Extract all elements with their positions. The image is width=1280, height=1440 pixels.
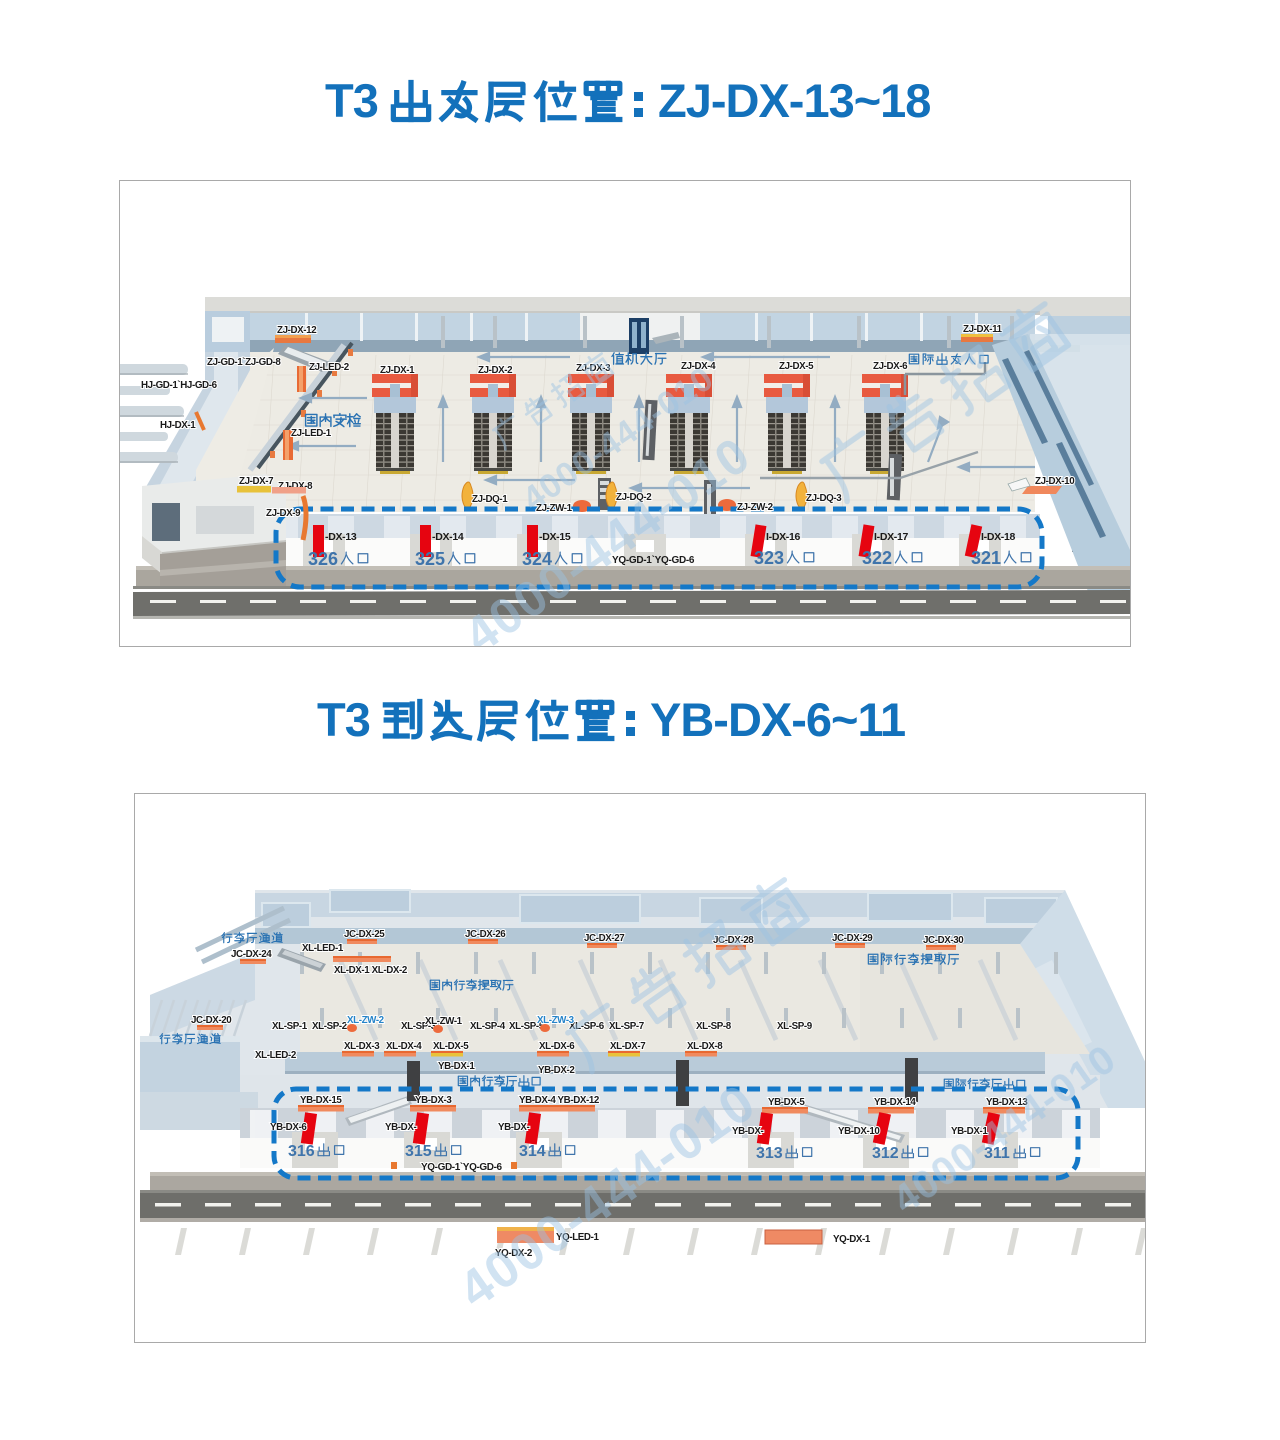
svg-text:ZJ-GD-1`ZJ-GD-8: ZJ-GD-1`ZJ-GD-8 [207,357,281,368]
svg-text:YB-DX-3: YB-DX-3 [415,1095,452,1106]
svg-text:XL-DX-7: XL-DX-7 [610,1041,646,1052]
svg-text:XL-DX-1 XL-DX-2: XL-DX-1 XL-DX-2 [334,965,408,976]
svg-text:JC-DX-30: JC-DX-30 [923,935,964,946]
svg-text:YQ-DX-1: YQ-DX-1 [833,1234,871,1245]
svg-text:YB-DX-2: YB-DX-2 [538,1065,575,1076]
svg-text:T3: T3 [325,74,378,127]
svg-text:XL-ZW-3: XL-ZW-3 [537,1015,575,1026]
svg-text:316: 316 [288,1143,315,1160]
svg-text:323: 323 [754,548,784,568]
svg-text:YQ-GD-1`YQ-GD-6: YQ-GD-1`YQ-GD-6 [421,1162,503,1173]
svg-text:XL-SP-2: XL-SP-2 [312,1021,348,1032]
svg-text:-DX-13: -DX-13 [325,531,357,543]
svg-text:ZJ-DX-5: ZJ-DX-5 [779,361,814,372]
svg-text:ZJ-DX-6: ZJ-DX-6 [873,361,908,372]
svg-text:ZJ-DQ-3: ZJ-DQ-3 [806,493,842,504]
svg-text:XL-LED-1: XL-LED-1 [302,943,344,954]
svg-text:YB-DX-4 YB-DX-12: YB-DX-4 YB-DX-12 [519,1095,600,1106]
svg-text:ZJ-DX-10: ZJ-DX-10 [1035,476,1075,487]
svg-text:HJ-GD-1`HJ-GD-6: HJ-GD-1`HJ-GD-6 [141,380,218,391]
svg-text:ZJ-DQ-1: ZJ-DQ-1 [472,494,508,505]
svg-text:JC-DX-20: JC-DX-20 [191,1015,232,1026]
svg-text:XL-SP-4: XL-SP-4 [470,1021,506,1032]
svg-text:312: 312 [872,1145,899,1162]
svg-text:ZJ-LED-2: ZJ-LED-2 [309,362,350,373]
svg-text:ZJ-DX-12: ZJ-DX-12 [277,325,317,336]
svg-text:I-DX-16: I-DX-16 [766,531,801,543]
svg-text:-DX-14: -DX-14 [432,531,464,543]
svg-text:ZJ-DX-11: ZJ-DX-11 [963,324,1003,335]
svg-text:YB-DX-: YB-DX- [385,1122,416,1133]
svg-text:XL-SP-1: XL-SP-1 [272,1021,308,1032]
svg-text:YB-DX-14: YB-DX-14 [874,1097,916,1108]
svg-text:YB-DX-5: YB-DX-5 [768,1097,805,1108]
svg-text:JC-DX-24: JC-DX-24 [231,949,272,960]
svg-text:I-DX-17: I-DX-17 [874,531,909,543]
svg-text:314: 314 [519,1143,546,1160]
svg-text:XL-ZW-1: XL-ZW-1 [425,1016,463,1027]
svg-text:ZJ-DX-1: ZJ-DX-1 [380,365,415,376]
svg-text:HJ-DX-1: HJ-DX-1 [160,420,196,431]
svg-text:326: 326 [308,549,338,569]
svg-text:XL-SP-7: XL-SP-7 [609,1021,645,1032]
svg-text:XL-DX-3: XL-DX-3 [344,1041,380,1052]
svg-text:YB-DX-10: YB-DX-10 [838,1126,880,1137]
svg-text:ZJ-ZW-2: ZJ-ZW-2 [737,502,774,513]
svg-text:JC-DX-27: JC-DX-27 [584,933,625,944]
svg-text:YB-DX-: YB-DX- [498,1122,529,1133]
svg-text:XL-DX-5: XL-DX-5 [433,1041,469,1052]
svg-text:JC-DX-25: JC-DX-25 [344,929,385,940]
svg-text:JC-DX-26: JC-DX-26 [465,929,506,940]
svg-text:XL-DX-4: XL-DX-4 [386,1041,422,1052]
svg-text:JC-DX-29: JC-DX-29 [832,933,873,944]
svg-text:XL-SP-9: XL-SP-9 [777,1021,813,1032]
svg-text:T3: T3 [317,693,370,746]
svg-text:YB-DX-1: YB-DX-1 [438,1061,475,1072]
svg-text:315: 315 [405,1143,432,1160]
svg-text:XL-SP-8: XL-SP-8 [696,1021,732,1032]
svg-text:321: 321 [971,548,1001,568]
svg-text:ZJ-DX-13~18: ZJ-DX-13~18 [658,74,930,127]
svg-text:XL-DX-8: XL-DX-8 [687,1041,723,1052]
svg-text:XL-DX-6: XL-DX-6 [539,1041,575,1052]
svg-text:ZJ-DX-2: ZJ-DX-2 [478,365,513,376]
svg-text:XL-LED-2: XL-LED-2 [255,1050,297,1061]
svg-text:I-DX-18: I-DX-18 [981,531,1016,543]
svg-text:ZJ-DX-9: ZJ-DX-9 [266,508,301,519]
svg-text:ZJ-LED-1: ZJ-LED-1 [291,428,332,439]
svg-text:ZJ-DX-7: ZJ-DX-7 [239,476,274,487]
svg-text:313: 313 [756,1145,783,1162]
svg-text:YB-DX-6~11: YB-DX-6~11 [650,693,905,746]
svg-text:322: 322 [862,548,892,568]
svg-text:YB-DX-15: YB-DX-15 [300,1095,342,1106]
svg-text:325: 325 [415,549,445,569]
